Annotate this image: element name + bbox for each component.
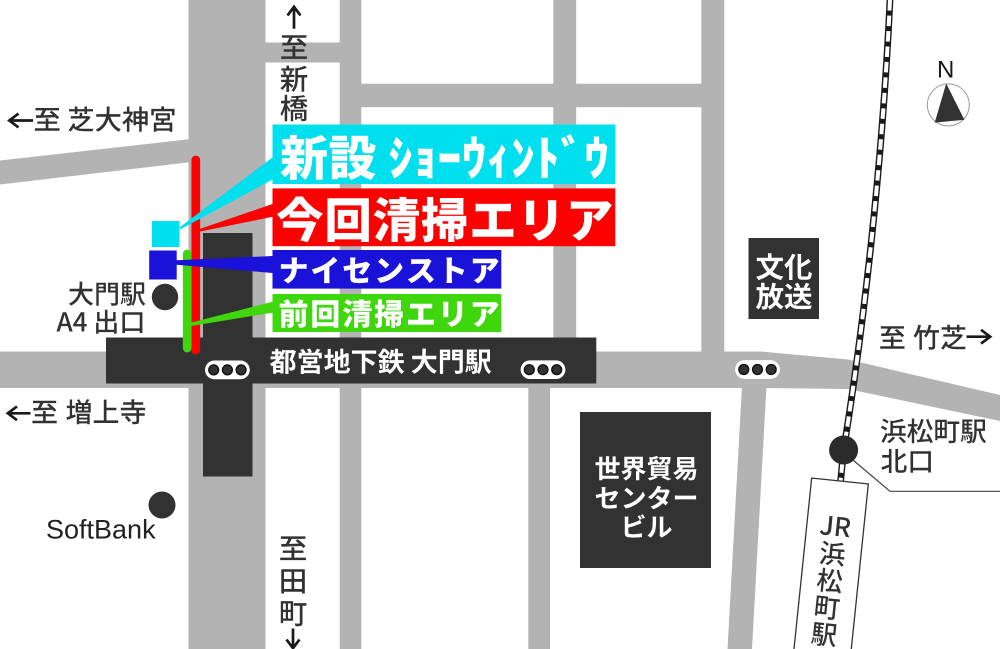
svg-text:N: N <box>937 57 954 84</box>
svg-text:SoftBank: SoftBank <box>46 515 156 545</box>
